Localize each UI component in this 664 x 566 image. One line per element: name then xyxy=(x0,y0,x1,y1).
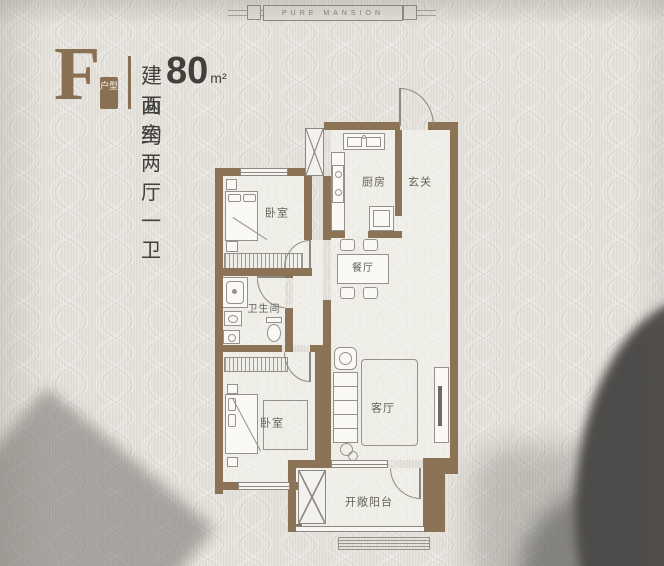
wall-balcony-top-left xyxy=(288,460,331,468)
window-bedroom-top xyxy=(240,168,288,176)
wall-kitchen-top xyxy=(324,122,400,130)
tv-cabinet xyxy=(434,367,449,443)
sofa xyxy=(333,372,358,443)
dining-chair xyxy=(340,287,355,299)
nightstand xyxy=(227,384,238,394)
bathroom-door-panel xyxy=(257,276,285,278)
kitchen-sink-counter xyxy=(343,133,385,150)
tub-drain xyxy=(232,289,237,294)
plant-pot xyxy=(334,347,357,370)
bedroom-top-door-panel xyxy=(309,240,311,268)
kitchen-sink-bowl xyxy=(347,137,362,147)
sink-basin xyxy=(228,315,238,323)
wall-kitchen-bottom-right xyxy=(368,231,402,238)
kitchen-stove xyxy=(332,165,344,203)
nightstand xyxy=(226,241,238,252)
pillow xyxy=(228,194,241,202)
unit-letter: F xyxy=(54,36,100,112)
toilet-tank xyxy=(266,317,282,323)
wall-bedroom-living-divider xyxy=(315,352,331,464)
floorplan-photo: PURE MANSION F 户型 建面约 80 m² 两室两厅一卫 xyxy=(0,0,664,566)
stove-burner xyxy=(335,171,342,178)
room-label-bedroom-bottom: 卧室 xyxy=(260,419,284,430)
bathroom-sink xyxy=(224,311,242,326)
room-label-bathroom: 卫生间 xyxy=(248,305,281,315)
fridge-inner xyxy=(373,210,390,227)
room-label-dining: 餐厅 xyxy=(352,264,374,274)
room-label-living: 客厅 xyxy=(371,404,395,415)
bed-bottom xyxy=(225,394,258,454)
wall-kitchen-right xyxy=(395,130,402,216)
room-label-balcony: 开敞阳台 xyxy=(345,498,393,509)
balcony-railing xyxy=(296,526,424,532)
wall-balcony-left xyxy=(288,468,296,532)
banner-brand-text: PURE MANSION xyxy=(282,10,384,17)
entry-door-panel xyxy=(399,88,401,126)
duct-shaft-balcony xyxy=(298,470,326,524)
wall-kitchen-bottom-left xyxy=(331,231,345,238)
wall-bathroom-right-stub xyxy=(285,272,293,278)
washer-drum xyxy=(228,334,236,342)
shower-tub xyxy=(222,277,248,308)
banner-end-square-left xyxy=(247,5,261,20)
kitchen-fridge xyxy=(369,206,394,231)
wall-bathroom-right xyxy=(285,308,293,352)
wall-exterior-right xyxy=(450,122,458,466)
dining-chair xyxy=(340,239,355,251)
kitchen-sink-bowl xyxy=(366,137,381,147)
wall-bathroom-bottom xyxy=(215,345,282,352)
banner-end-square-right xyxy=(403,5,417,20)
bed-top xyxy=(225,191,258,241)
title-divider xyxy=(128,56,131,109)
wall-center-mid xyxy=(323,300,331,345)
room-label-kitchen: 厨房 xyxy=(362,178,386,189)
wall-bedroom-top-right xyxy=(304,176,312,240)
window-bedroom-bottom xyxy=(238,482,290,490)
dining-chair xyxy=(363,239,378,251)
duct-shaft-kitchen xyxy=(305,128,324,176)
banner-brand: PURE MANSION xyxy=(263,5,403,21)
wall-balcony-right xyxy=(423,474,445,532)
room-label-foyer: 玄关 xyxy=(408,178,432,189)
area-value: 80 xyxy=(166,50,208,93)
wall-bathroom-top xyxy=(215,268,312,276)
planter-box xyxy=(338,537,430,550)
wall-exterior-left xyxy=(215,168,223,494)
layout-text: 两室两厅一卫 xyxy=(141,89,163,263)
unit-type-tag: 户型 xyxy=(100,77,118,109)
wall-center-upper xyxy=(323,176,331,240)
dining-chair xyxy=(363,287,378,299)
toilet-bowl xyxy=(267,324,281,342)
tv-screen xyxy=(438,386,442,426)
pillow xyxy=(228,414,236,427)
nightstand xyxy=(226,179,237,190)
nightstand xyxy=(227,457,238,467)
wardrobe-bottom xyxy=(224,357,288,372)
washing-machine xyxy=(223,330,240,344)
bedroom-bottom-door-panel xyxy=(309,352,311,382)
plant-leaves xyxy=(339,352,352,365)
wall-living-bottom-corner xyxy=(423,458,458,474)
window-living-balcony xyxy=(331,460,388,468)
kitchen-tap xyxy=(362,135,366,139)
balcony-door-panel xyxy=(419,468,421,499)
area-unit: m² xyxy=(210,70,226,86)
pillow xyxy=(243,194,256,202)
room-label-bedroom-top: 卧室 xyxy=(265,209,289,220)
stove-burner xyxy=(335,189,342,196)
wall-corridor-stub xyxy=(310,345,331,352)
